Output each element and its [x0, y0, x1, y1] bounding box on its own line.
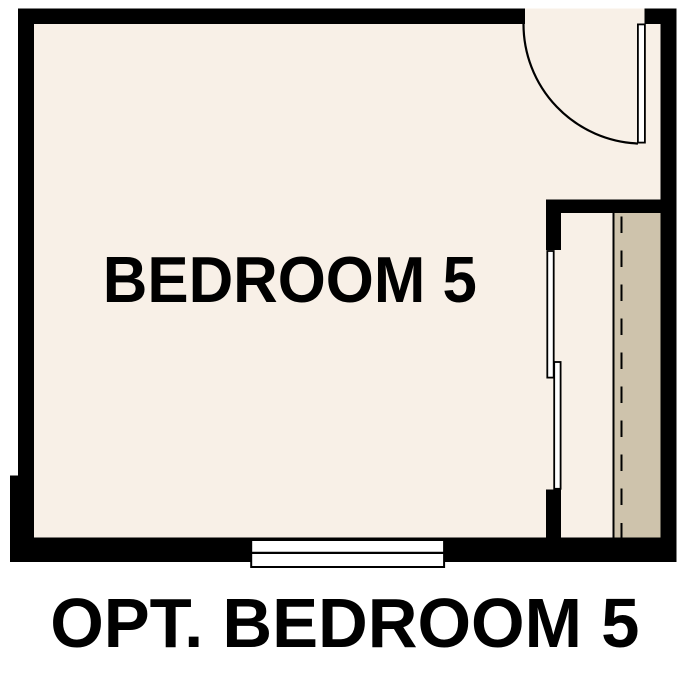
svg-text:BEDROOM 5: BEDROOM 5 [103, 243, 477, 316]
svg-text:OPT. BEDROOM 5: OPT. BEDROOM 5 [50, 584, 639, 662]
